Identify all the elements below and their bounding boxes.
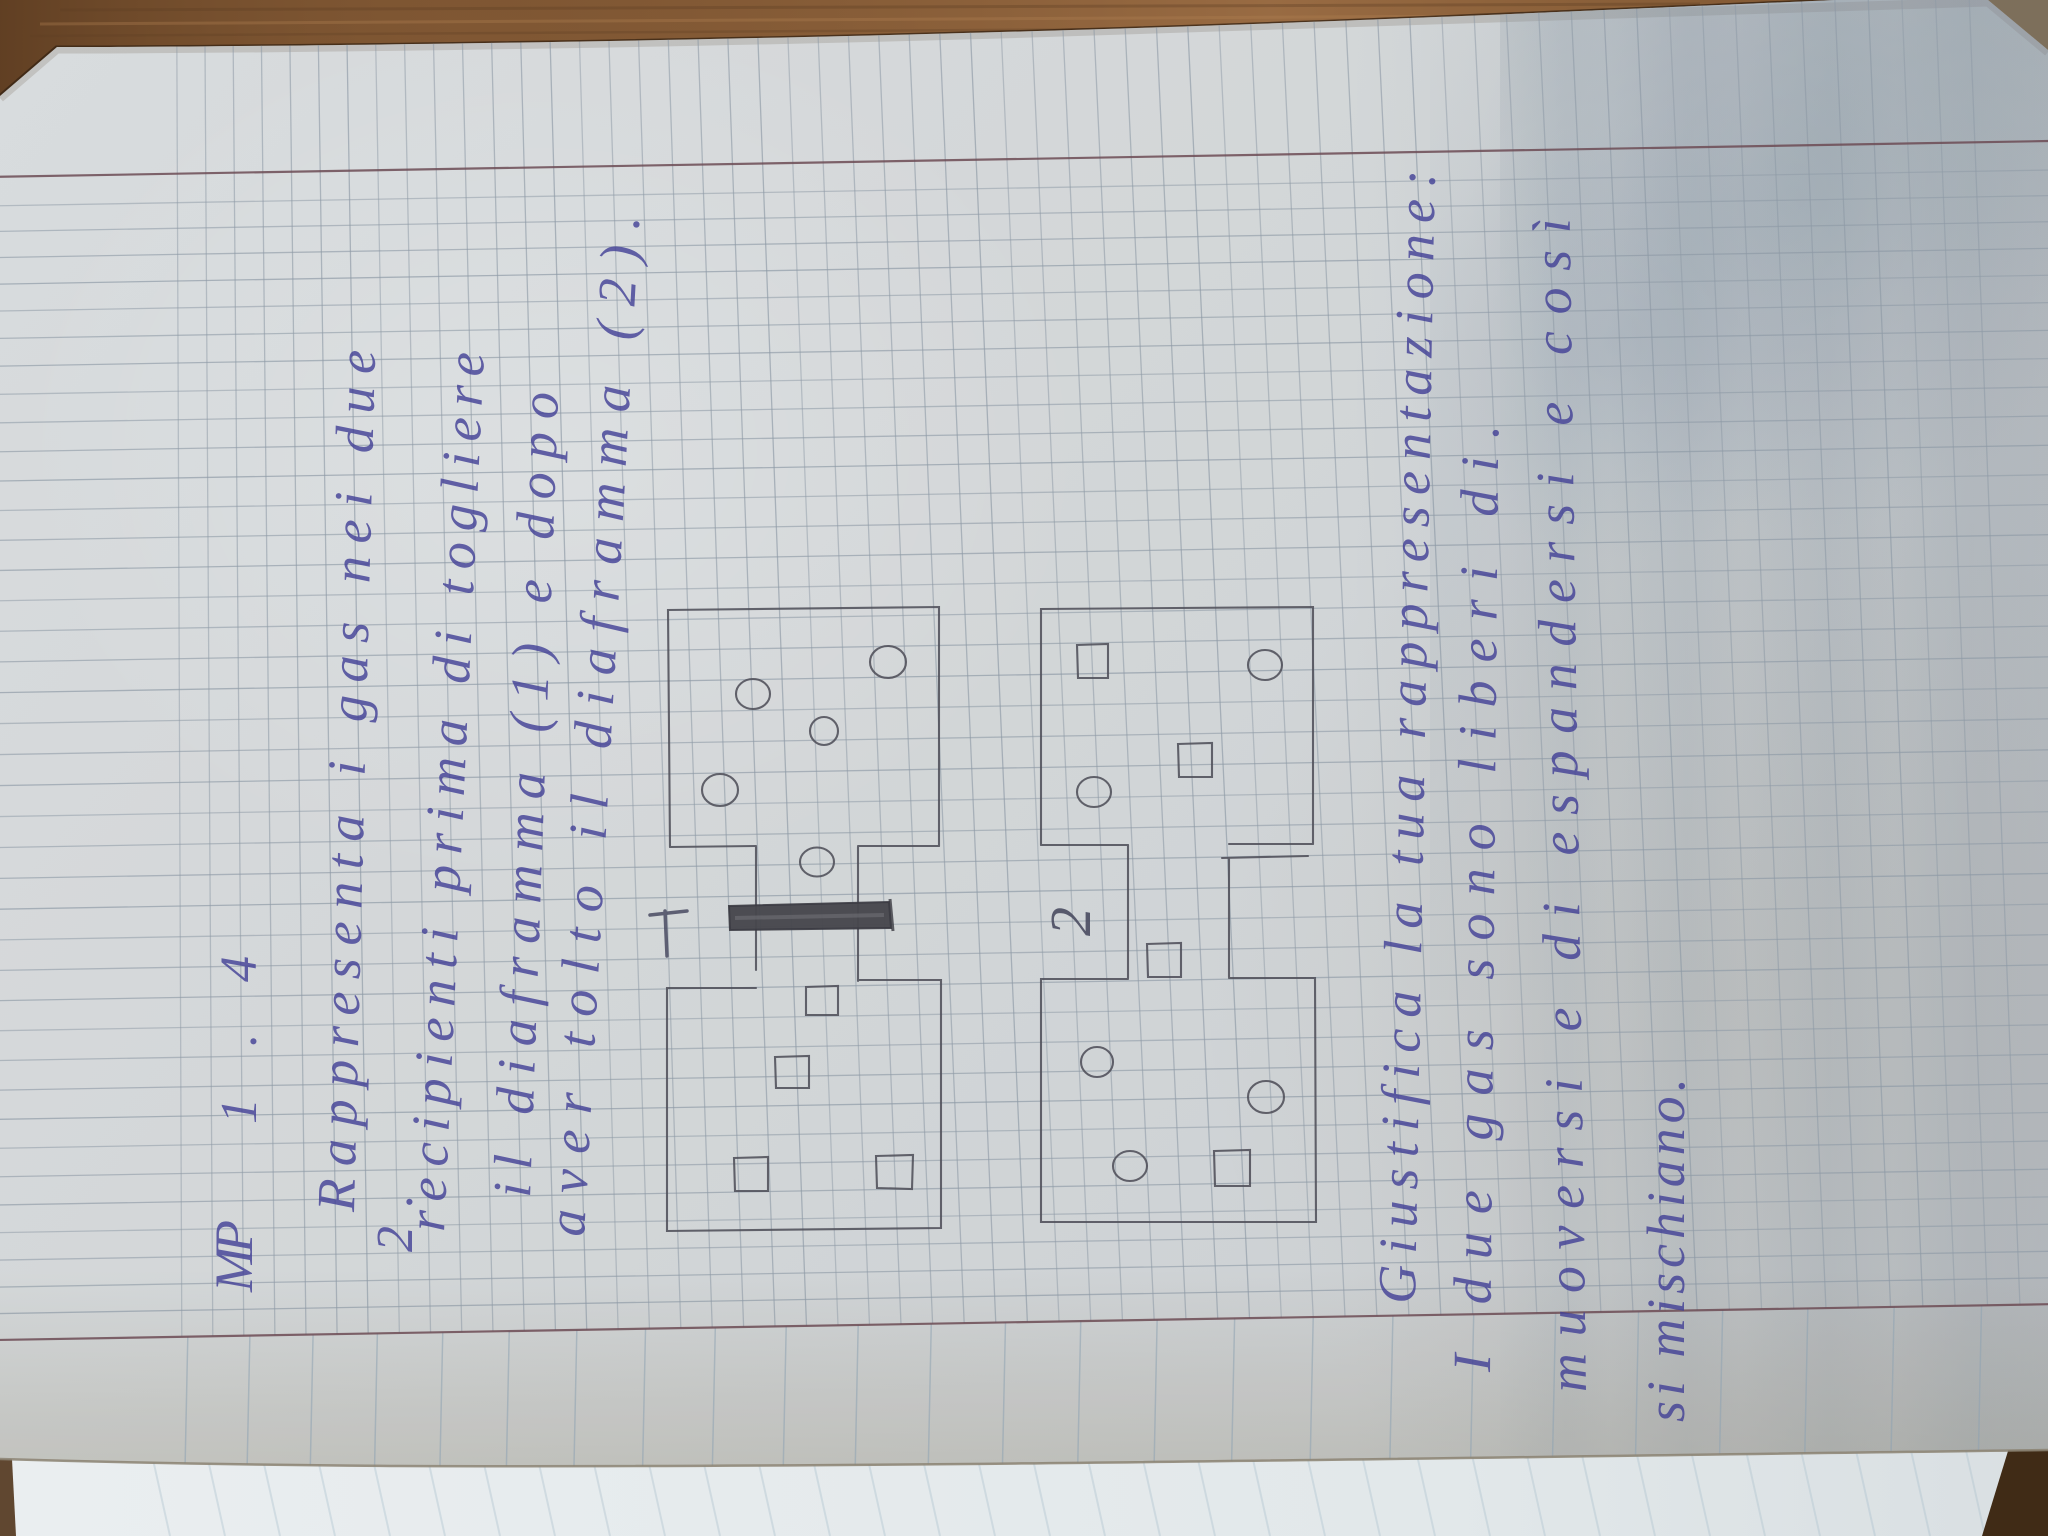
svg-text:si mischiano.: si mischiano.	[1636, 1078, 1696, 1422]
svg-text:2: 2	[1038, 907, 1103, 936]
svg-text:MP: MP	[204, 1220, 264, 1293]
svg-text:1.4: 1.4	[211, 956, 268, 1124]
